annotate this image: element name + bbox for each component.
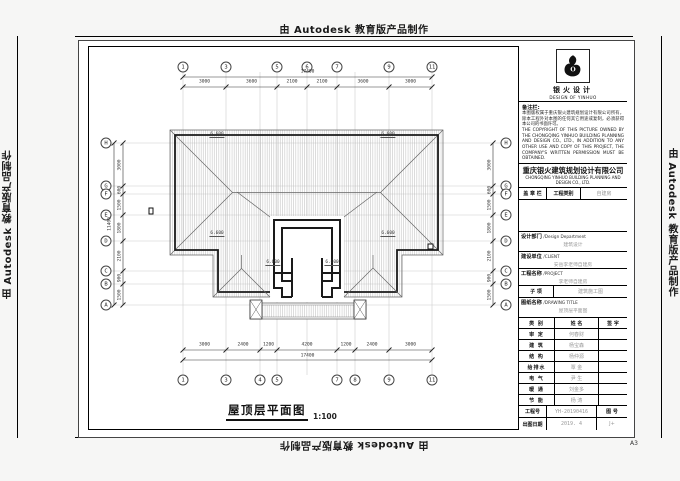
dim-label: 3000 [117, 159, 122, 170]
grid-bubble: A [101, 300, 112, 311]
design-dept-row: 设计部门 /Design Department 建筑设计 [519, 232, 627, 252]
client-row: 建设单位 /CLIENT 安岳李老师自建房 [519, 252, 627, 269]
dim-label: 3000 [405, 80, 416, 85]
sig-role: 给排水 [519, 362, 555, 372]
stamp-area [519, 200, 627, 232]
dim-label: 2400 [237, 343, 248, 348]
logo-box [556, 49, 590, 83]
dim-label: 1200 [340, 343, 351, 348]
company-name-en: CHONGQING YINHUO BUILDING PLANNING AND D… [519, 176, 627, 186]
design-dept-label: 设计部门 [521, 234, 542, 240]
sig-sign [599, 362, 627, 372]
sig-name: 覃 金 [555, 362, 599, 372]
signature-row: 节 能 杨 涛 [519, 395, 627, 405]
logo-section: 银火设计 DESIGN OF YINHUO [519, 46, 627, 102]
plan-title-group: 屋顶层平面图 1:100 [226, 402, 337, 421]
grid-bubble: D [101, 236, 112, 247]
dim-label: 3000 [405, 343, 416, 348]
grid-bubble: 3 [221, 62, 232, 73]
remarks-label: 备注栏: [522, 104, 624, 111]
dim-label: 1800 [487, 222, 492, 233]
dim-label: 2100 [117, 250, 122, 261]
plot-date-value: 2019. 4 [547, 418, 597, 430]
sig-name: 何春财 [555, 329, 599, 339]
grid-bubble: 7 [332, 62, 343, 73]
elevation-label: 6.600 [324, 260, 339, 266]
project-name-value: 李老师自建房 [521, 278, 625, 285]
dim-label: 3000 [199, 343, 210, 348]
sub-item-label: 子 项 [519, 286, 554, 297]
grid-bubble: B [501, 279, 512, 290]
project-category-value: 自建房 [581, 188, 627, 199]
dim-label: 2400 [366, 343, 377, 348]
signature-row: 建 筑 杨宝森 [519, 340, 627, 351]
drawing-title-value: 屋顶层平面图 [521, 307, 625, 314]
dim-label: 4200 [301, 343, 312, 348]
grid-bubble: 3 [221, 375, 232, 386]
project-number-label: 工程号 [519, 406, 547, 417]
signature-table: 类 别 姓 名 签 字 审 定 何春财 建 筑 杨宝森 结 构 杨仲源 给排水 [519, 318, 627, 406]
dim-label: 1500 [487, 289, 492, 300]
dim-label-total: 17400 [301, 354, 315, 359]
drawing-title-label: 图纸名称 [521, 300, 542, 306]
company-logo-name-cn: 银火设计 [519, 85, 627, 95]
dim-label: 3000 [487, 159, 492, 170]
sig-sign [599, 340, 627, 350]
drawing-number-value: J+ [597, 418, 627, 430]
grid-bubble: 5 [272, 375, 283, 386]
sig-name: 杨仲源 [555, 351, 599, 361]
dim-label-total: 11400 [108, 217, 113, 231]
dim-label: 600 [117, 186, 122, 194]
sig-sign [599, 351, 627, 361]
dim-label: 1500 [487, 199, 492, 210]
grid-bubble: C [501, 266, 512, 277]
remarks-text-en: THE COPYRIGHT OF THIS PICTURE OWNED BY T… [522, 128, 624, 162]
grid-bubble: 7 [332, 375, 343, 386]
sig-sign [599, 384, 627, 394]
flame-logo-icon [560, 53, 586, 79]
company-section: 重庆银火建筑规划设计有限公司 CHONGQING YINHUO BUILDING… [519, 164, 627, 188]
sub-item-row: 子 项 建筑施工图 [519, 286, 627, 298]
drawing-number-label: 图 号 [597, 406, 627, 417]
grid-bubble: F [501, 189, 512, 200]
project-name-label-en: /PROJECT [543, 271, 563, 276]
signature-row: 审 定 何春财 [519, 329, 627, 340]
remarks-section: 备注栏: 本图版权属于重庆银火建筑规划设计有限公司所有，除本工程外对本图的任何其… [519, 102, 627, 164]
sig-name: 刘金多 [555, 384, 599, 394]
sig-col-sign: 签 字 [599, 318, 627, 328]
elevation-label: 6.600 [265, 260, 280, 266]
plot-date-label: 出图日期 [519, 418, 547, 430]
project-number-row: 工程号 YH-20190416 图 号 [519, 406, 627, 418]
grid-bubble: 1 [178, 62, 189, 73]
project-name-label: 工程名称 [521, 271, 542, 277]
signature-table-header: 类 别 姓 名 签 字 [519, 318, 627, 329]
dim-label-total: 17400 [301, 70, 315, 75]
signature-row: 电 气 尹 生 [519, 373, 627, 384]
sig-sign [599, 395, 627, 405]
dim-label: 2100 [316, 80, 327, 85]
grid-bubble: F [101, 189, 112, 200]
drawing-title-row: 图纸名称 /DRAWING TITLE 屋顶层平面图 [519, 298, 627, 318]
sig-name: 杨 涛 [555, 395, 599, 405]
grid-bubble: A [501, 300, 512, 311]
plan-title: 屋顶层平面图 [226, 402, 308, 421]
sig-sign [599, 329, 627, 339]
signature-row: 给排水 覃 金 [519, 362, 627, 373]
design-dept-label-en: /Design Department [543, 234, 586, 239]
sig-name: 杨宝森 [555, 340, 599, 350]
dim-label: 1800 [117, 222, 122, 233]
dim-label: 3600 [357, 80, 368, 85]
dim-label: 1200 [263, 343, 274, 348]
grid-bubble: 8 [350, 375, 361, 386]
sub-item-value: 建筑施工图 [554, 288, 627, 295]
grid-bubble: D [501, 236, 512, 247]
sig-name: 尹 生 [555, 373, 599, 383]
sig-col-name: 姓 名 [555, 318, 599, 328]
elevation-label: 6.600 [380, 231, 395, 237]
sig-role: 电 气 [519, 373, 555, 383]
signature-row: 暖 通 刘金多 [519, 384, 627, 395]
sig-role: 建 筑 [519, 340, 555, 350]
sig-role: 结 构 [519, 351, 555, 361]
grid-bubble: H [501, 138, 512, 149]
client-value: 安岳李老师自建房 [521, 261, 625, 268]
elevation-label: 6.600 [380, 132, 395, 138]
grid-bubble: 11 [427, 62, 438, 73]
plan-scale: 1:100 [313, 412, 337, 421]
dim-label: 900 [487, 273, 492, 281]
grid-bubble: 9 [384, 62, 395, 73]
dim-label: 2100 [286, 80, 297, 85]
grid-bubble: E [501, 210, 512, 221]
elevation-label: 6.600 [209, 231, 224, 237]
plot-date-row: 出图日期 2019. 4 J+ [519, 418, 627, 430]
grid-bubble: 1 [178, 375, 189, 386]
client-label-en: /CLIENT [543, 254, 559, 259]
title-block: 银火设计 DESIGN OF YINHUO 备注栏: 本图版权属于重庆银火建筑规… [518, 46, 627, 430]
sig-sign [599, 373, 627, 383]
sig-col-role: 类 别 [519, 318, 555, 328]
elevation-label: 6.600 [209, 132, 224, 138]
sig-role: 审 定 [519, 329, 555, 339]
project-category-label: 工程类别 [547, 188, 581, 199]
company-logo-name-en: DESIGN OF YINHUO [519, 95, 627, 100]
drawing-title-label-en: /DRAWING TITLE [543, 300, 577, 305]
client-label: 建设单位 [521, 254, 542, 260]
remarks-text-cn: 本图版权属于重庆银火建筑规划设计有限公司所有，除本工程外对本图的任何其它用途或复… [522, 111, 624, 128]
dim-label: 3600 [246, 80, 257, 85]
stamp-label: 盖 章 栏 [519, 188, 547, 199]
project-name-row: 工程名称 /PROJECT 李老师自建房 [519, 269, 627, 286]
grid-bubble: 4 [255, 375, 266, 386]
signature-row: 结 构 杨仲源 [519, 351, 627, 362]
grid-bubble: 9 [384, 375, 395, 386]
sig-role: 节 能 [519, 395, 555, 405]
grid-bubble: C [101, 266, 112, 277]
dim-label: 900 [117, 273, 122, 281]
stamp-category-row: 盖 章 栏 工程类别 自建房 [519, 188, 627, 200]
dim-label: 600 [487, 186, 492, 194]
dim-label: 3000 [199, 80, 210, 85]
sig-role: 暖 通 [519, 384, 555, 394]
project-number-value: YH-20190416 [547, 406, 597, 417]
dim-label: 1500 [117, 199, 122, 210]
dim-label: 2100 [487, 250, 492, 261]
grid-bubble: H [101, 138, 112, 149]
design-dept-value: 建筑设计 [521, 241, 625, 248]
dim-label: 1500 [117, 289, 122, 300]
cad-sheet-page: 由 Autodesk 教育版产品制作 由 Autodesk 教育版产品制作 由 … [0, 0, 680, 481]
grid-bubble: 5 [272, 62, 283, 73]
grid-bubble: 11 [427, 375, 438, 386]
grid-bubble: B [101, 279, 112, 290]
